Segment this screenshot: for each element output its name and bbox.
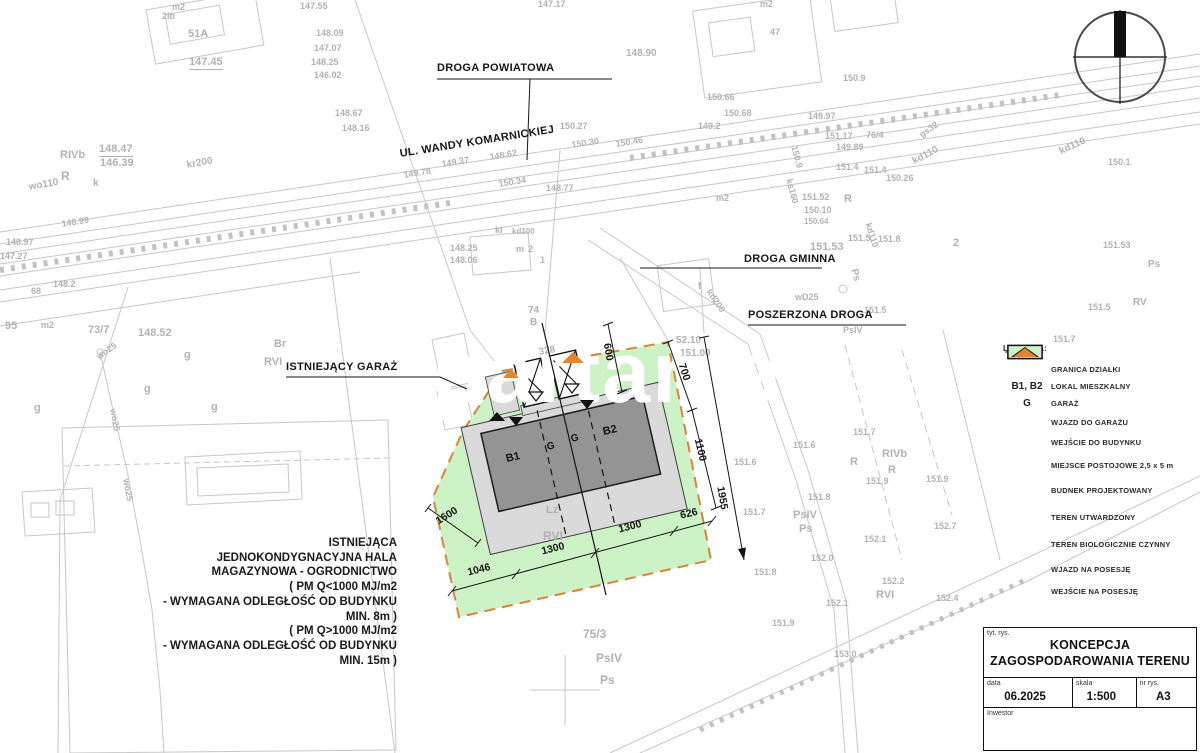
drawing-title: KONCEPCJA ZAGOSPODAROWANIA TERENU	[984, 637, 1196, 669]
sheet-number-label: nr rys.	[1140, 680, 1159, 687]
legend-item-label: GRANICA DZIAŁKI	[1051, 365, 1120, 374]
legend-item: MIEJSCE POSTOJOWE 2,5 x 5 m	[1003, 453, 1200, 477]
drawing-title-line2: ZAGOSPODAROWANIA TERENU	[984, 653, 1196, 669]
note-line: MIN. 15m )	[65, 654, 397, 669]
note-line: ( PM Q<1000 MJ/m2	[65, 580, 397, 595]
note-line: - WYMAGANA ODLEGŁOŚĆ OD BUDYNKU	[65, 595, 397, 610]
legend-item: WEJŚCIE DO BUDYNKU	[1003, 432, 1200, 453]
note-line: ( PM Q>1000 MJ/m2	[65, 624, 397, 639]
dimension-label: 1100	[692, 438, 707, 463]
existing-hall-note: ISTNIEJĄCAJEDNOKONDYGNACYJNA HALAMAGAZYN…	[65, 536, 397, 668]
scale-value: 1:500	[1073, 691, 1130, 703]
legend-item-label: LOKAL MIESZKALNY	[1051, 382, 1131, 391]
dimension-label: 1046	[466, 562, 491, 578]
legend-item: GRANICA DZIAŁKI	[1003, 360, 1200, 378]
label-poszerzona-droga: POSZERZONA DROGA	[748, 309, 873, 321]
legend: LEGENDA: GRANICA DZIAŁKIB1, B2LOKAL MIES…	[1003, 344, 1200, 602]
date-value: 06.2025	[984, 691, 1066, 703]
dimension-label: 700	[676, 362, 691, 382]
legend-item-label: BUDNEK PROJEKTOWANY	[1051, 486, 1153, 495]
legend-item-label: TEREN BIOLOGICZNIE CZYNNY	[1051, 540, 1171, 549]
building-label: G	[546, 441, 556, 452]
legend-item: TEREN UTWARDZONY	[1003, 504, 1200, 531]
legend-symbol-text: G	[1003, 398, 1051, 409]
legend-item-label: WEJŚCIE NA POSESJĘ	[1051, 587, 1138, 596]
legend-item: WJAZD DO GARAŻU	[1003, 412, 1200, 432]
label-ul-wandy-komarnickiej: UL. WANDY KOMARNICKIEJ	[399, 124, 555, 160]
label-droga-gminna: DROGA GMINNA	[744, 253, 836, 265]
dimension-label: 626	[679, 507, 699, 521]
legend-item: GGARAŻ	[1003, 395, 1200, 412]
site-plan-drawing: 147.55148.09147.07148.25146.02148.67148.…	[0, 0, 1200, 753]
legend-item-label: MIEJSCE POSTOJOWE 2,5 x 5 m	[1051, 461, 1173, 470]
label-droga-powiatowa: DROGA POWIATOWA	[437, 62, 554, 74]
legend-item-label: WEJŚCIE DO BUDYNKU	[1051, 438, 1141, 447]
note-line: - WYMAGANA ODLEGŁOŚĆ OD BUDYNKU	[65, 639, 397, 654]
dimension-label: 1955	[715, 486, 729, 511]
sheet-number-value: A3	[1137, 691, 1190, 703]
building-label: B2	[602, 424, 618, 438]
dimension-label: 1300	[540, 541, 565, 557]
label-istniejacy-garaz: ISTNIEJĄCY GARAŻ	[286, 361, 398, 373]
drawing-title-line1: KONCEPCJA	[984, 637, 1196, 653]
investor-label: Inwestor	[987, 710, 1013, 717]
dimension-label: 1600	[434, 505, 459, 526]
legend-item: B1, B2LOKAL MIESZKALNY	[1003, 378, 1200, 395]
title-block: tyt. rys. KONCEPCJA ZAGOSPODAROWANIA TER…	[983, 627, 1197, 751]
legend-item: BUDNEK PROJEKTOWANY	[1003, 477, 1200, 504]
scale-label: skala	[1076, 680, 1092, 687]
note-line: MAGAZYNOWA - OGRODNICTWO	[65, 565, 397, 580]
legend-item-label: GARAŻ	[1051, 399, 1079, 408]
legend-item: TEREN BIOLOGICZNIE CZYNNY	[1003, 531, 1200, 558]
legend-symbol-text: B1, B2	[1003, 381, 1051, 392]
note-line: MIN. 8m )	[65, 610, 397, 625]
legend-item: WJAZD NA POSESJĘ	[1003, 558, 1200, 580]
legend-item-label: WJAZD NA POSESJĘ	[1051, 565, 1131, 574]
note-line: JEDNOKONDYGNACYJNA HALA	[65, 551, 397, 566]
building-label: G	[570, 433, 580, 444]
titleblock-tyt-label: tyt. rys.	[987, 630, 1010, 637]
note-line: ISTNIEJĄCA	[65, 536, 397, 551]
date-label: data	[987, 680, 1001, 687]
legend-item: WEJŚCIE NA POSESJĘ	[1003, 580, 1200, 602]
building-label: B1	[505, 451, 521, 465]
legend-item-label: TEREN UTWARDZONY	[1051, 513, 1135, 522]
dimension-label: 1300	[617, 519, 642, 535]
legend-item-label: WJAZD DO GARAŻU	[1051, 418, 1128, 427]
dimension-label: 600	[601, 342, 614, 361]
